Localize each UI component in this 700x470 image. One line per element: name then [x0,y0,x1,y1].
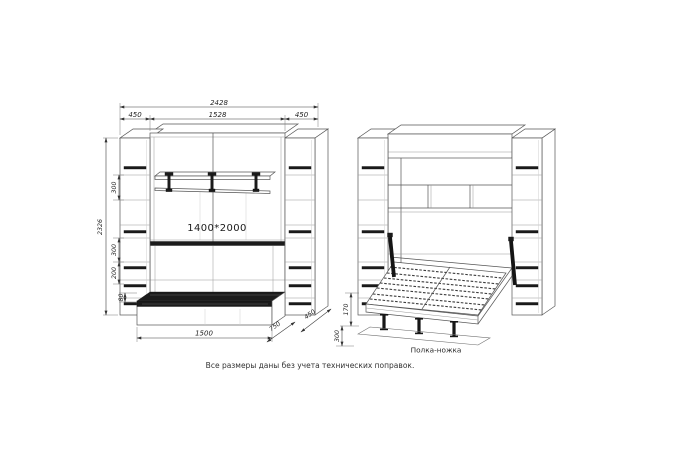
shelf-leg-label: Полка-ножка [411,346,462,355]
side-cabinet-left [120,138,150,315]
closed-view-drawing: 1400*2000 2428 450 1528 450 2326 [97,99,331,342]
dim-upper-shelf-height: 300 [111,181,118,193]
dim-total-width: 2428 [210,99,228,107]
side-cabinet-right-open [512,138,542,315]
dimensions-open-view: 170 300 [334,293,359,346]
dim-bed-frame-height: 170 [343,303,350,315]
dim-lower-shelf-height: 300 [111,244,118,256]
top-bridge-cabinet [388,134,512,158]
dim-total-height: 2326 [97,219,104,235]
dim-plinth-height: 80 [118,293,125,301]
dim-right-section-width: 450 [295,111,309,119]
shelf-leg-base-plate [358,327,490,345]
dim-left-section-width: 450 [128,111,142,119]
open-view-drawing: Полка-ножка 170 300 [334,125,555,355]
technical-drawing-canvas: 1400*2000 2428 450 1528 450 2326 [0,0,700,470]
bench-shelf-leg-closed [137,292,285,325]
dim-underbed-clearance: 300 [334,330,341,342]
dim-bench-width: 1500 [195,330,213,338]
blueprint-page: 1400*2000 2428 450 1528 450 2326 [0,0,700,470]
caption-text: Все размеры даны без учета технических п… [206,361,415,370]
dim-center-section-width: 1528 [209,111,227,119]
bed-size-label: 1400*2000 [187,223,247,234]
dim-drawer-zone-height: 200 [111,267,118,279]
side-cabinet-right [285,138,315,315]
niche-shelf-unit [388,185,512,254]
